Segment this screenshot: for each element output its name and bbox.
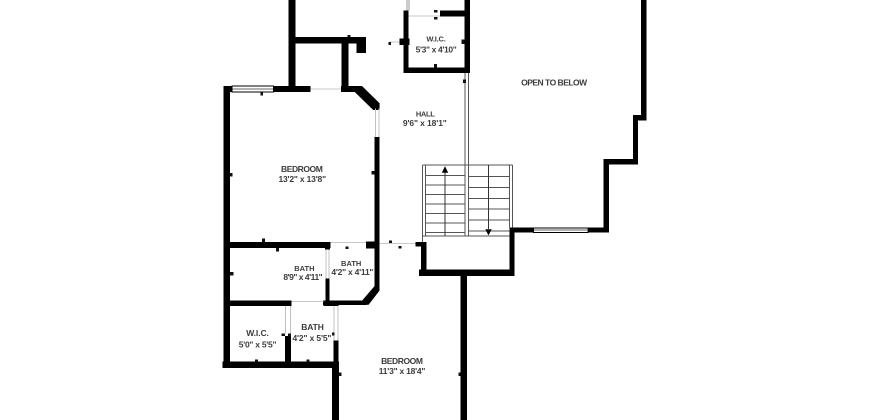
svg-text:BATH: BATH [301, 322, 324, 332]
svg-text:5'3" x 4'10": 5'3" x 4'10" [416, 45, 457, 55]
svg-text:BEDROOM: BEDROOM [281, 164, 323, 174]
svg-text:5'0" x 5'5": 5'0" x 5'5" [239, 340, 277, 350]
svg-text:BEDROOM: BEDROOM [381, 356, 423, 366]
svg-text:W.I.C.: W.I.C. [426, 34, 445, 43]
svg-text:8'9" x 4'11": 8'9" x 4'11" [283, 272, 322, 282]
svg-text:OPEN TO BELOW: OPEN TO BELOW [521, 77, 588, 87]
svg-text:4'2" x 4'11": 4'2" x 4'11" [331, 267, 373, 277]
svg-text:9'6" x 18'1": 9'6" x 18'1" [403, 118, 447, 128]
svg-text:4'2" x 5'5": 4'2" x 5'5" [292, 333, 331, 343]
svg-text:13'2" x 13'8": 13'2" x 13'8" [278, 174, 326, 184]
svg-text:W.I.C.: W.I.C. [246, 328, 269, 338]
svg-text:11'3" x 18'4": 11'3" x 18'4" [379, 366, 426, 376]
